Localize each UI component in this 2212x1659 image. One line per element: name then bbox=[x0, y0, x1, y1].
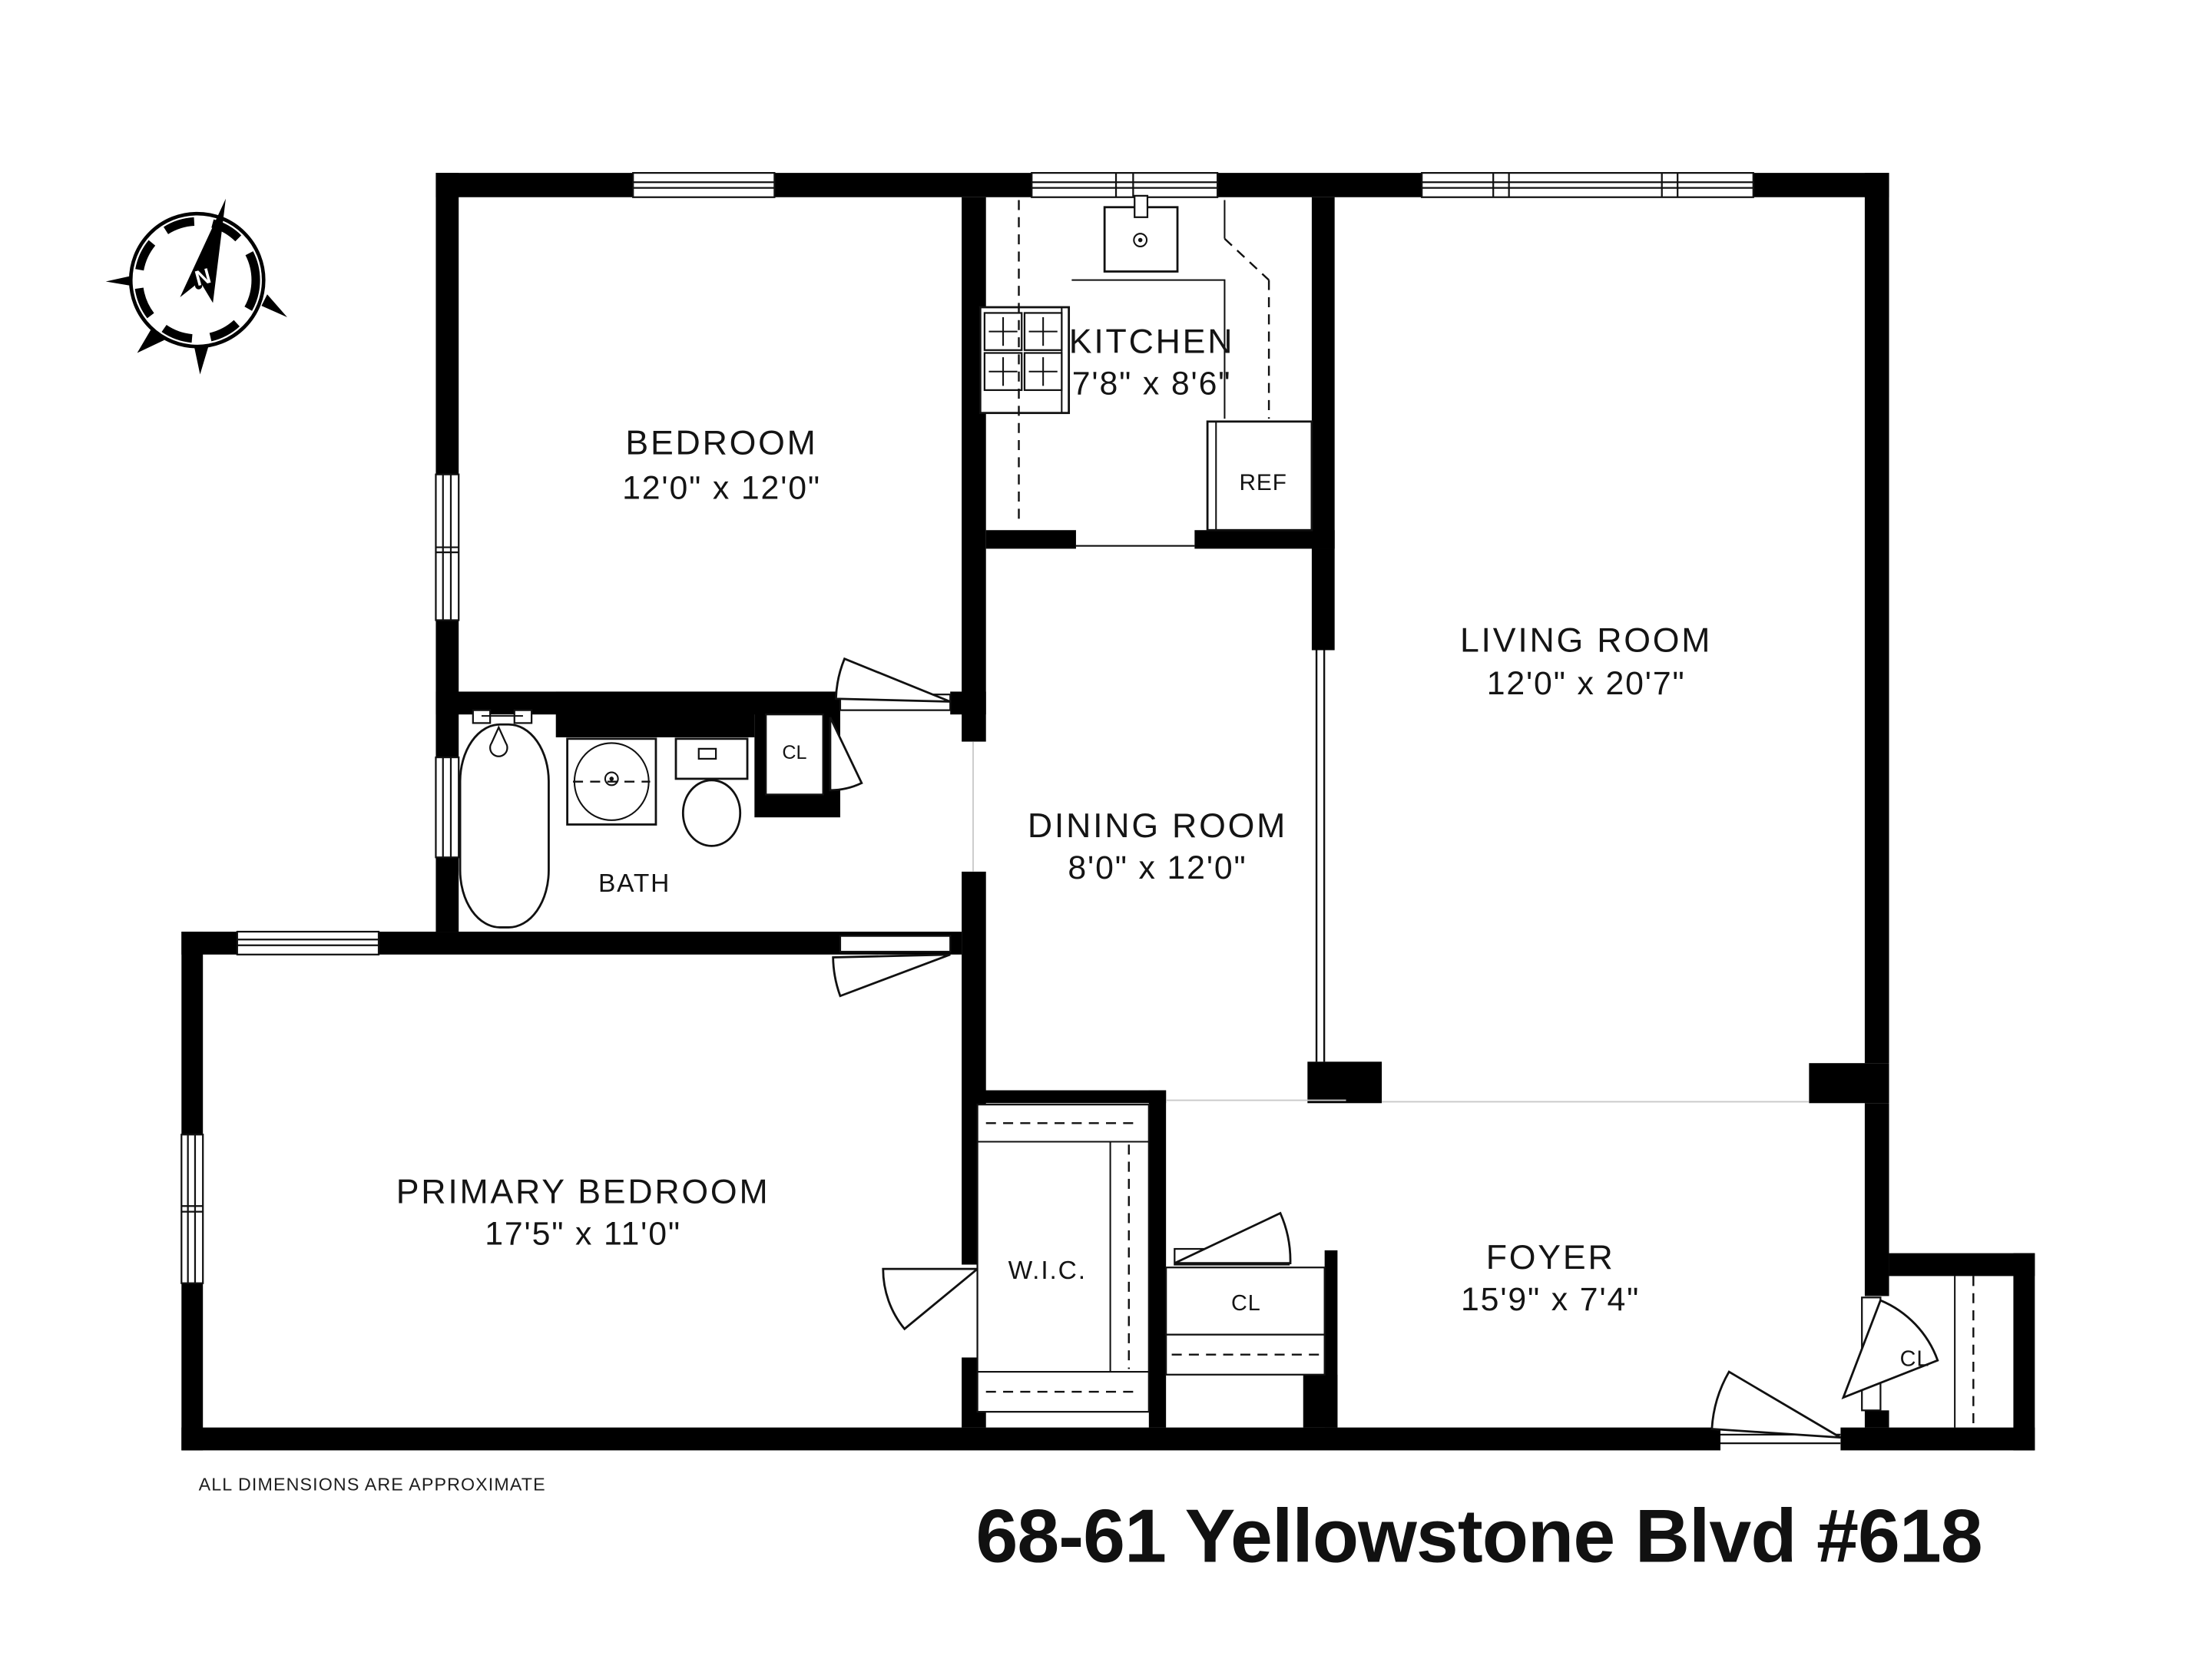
compass-spike-icon bbox=[137, 329, 164, 353]
kitchen-dims: 7'8" x 8'6" bbox=[1072, 365, 1232, 402]
door-hall-closet bbox=[1174, 1214, 1290, 1265]
floor-plan-drawing: N BEDROOM 12'0" x 12'0" KITCHEN 7'8" x 8… bbox=[0, 0, 2212, 1659]
hall-closet-box bbox=[1166, 1267, 1325, 1375]
bathroom-sink-icon bbox=[568, 739, 656, 825]
window-living-top bbox=[1422, 173, 1753, 197]
refrigerator-label: REF bbox=[1240, 470, 1287, 495]
kitchen-label: KITCHEN bbox=[1069, 323, 1234, 361]
wic-label: W.I.C. bbox=[1008, 1257, 1087, 1285]
toilet-icon bbox=[676, 739, 747, 846]
living-room-dims: 12'0" x 20'7" bbox=[1487, 665, 1686, 702]
foyer-closet-box bbox=[1955, 1276, 1973, 1427]
dining-room-label: DINING ROOM bbox=[1028, 807, 1287, 845]
window-primary-top bbox=[237, 932, 379, 955]
hall-closet-label: CL bbox=[1231, 1291, 1261, 1316]
page-title: 68-61 Yellowstone Blvd #618 bbox=[975, 1493, 1982, 1578]
footer: ALL DIMENSIONS ARE APPROXIMATE 68-61 Yel… bbox=[199, 1474, 1982, 1578]
compass-spike-icon bbox=[261, 294, 286, 317]
primary-bedroom-label: PRIMARY BEDROOM bbox=[396, 1174, 770, 1211]
bedroom-dims: 12'0" x 12'0" bbox=[622, 469, 821, 506]
door-primary-bedroom bbox=[833, 936, 951, 996]
window-primary-left bbox=[181, 1134, 203, 1283]
bedroom-label: BEDROOM bbox=[625, 425, 817, 462]
compass-spike-icon bbox=[106, 276, 131, 286]
kitchen-sink-icon bbox=[1104, 196, 1177, 272]
window-bedroom-left bbox=[435, 475, 459, 621]
door-bath-closet bbox=[830, 717, 862, 790]
foyer-closet-label: CL bbox=[1900, 1347, 1930, 1372]
primary-bedroom-dims: 17'5" x 11'0" bbox=[485, 1215, 681, 1252]
door-bedroom bbox=[836, 659, 950, 710]
dining-room-dims: 8'0" x 12'0" bbox=[1068, 849, 1247, 886]
window-kitchen-top bbox=[1031, 173, 1217, 197]
window-bath-left bbox=[435, 757, 459, 857]
bath-label: BATH bbox=[598, 869, 671, 898]
floor-plan-page: N BEDROOM 12'0" x 12'0" KITCHEN 7'8" x 8… bbox=[0, 0, 2212, 1659]
stove-icon bbox=[980, 307, 1068, 413]
foyer-dims: 15'9" x 7'4" bbox=[1461, 1281, 1640, 1318]
foyer-label: FOYER bbox=[1486, 1239, 1615, 1277]
bathtub-icon bbox=[460, 710, 548, 928]
compass-spike-icon bbox=[194, 346, 209, 374]
bath-closet-label: CL bbox=[782, 742, 806, 763]
compass-rose: N bbox=[106, 199, 287, 375]
living-room-label: LIVING ROOM bbox=[1460, 621, 1712, 659]
door-wic bbox=[883, 1269, 978, 1329]
door-entry bbox=[1712, 1372, 1840, 1438]
disclaimer-text: ALL DIMENSIONS ARE APPROXIMATE bbox=[199, 1474, 546, 1494]
window-bedroom-top bbox=[633, 173, 774, 197]
